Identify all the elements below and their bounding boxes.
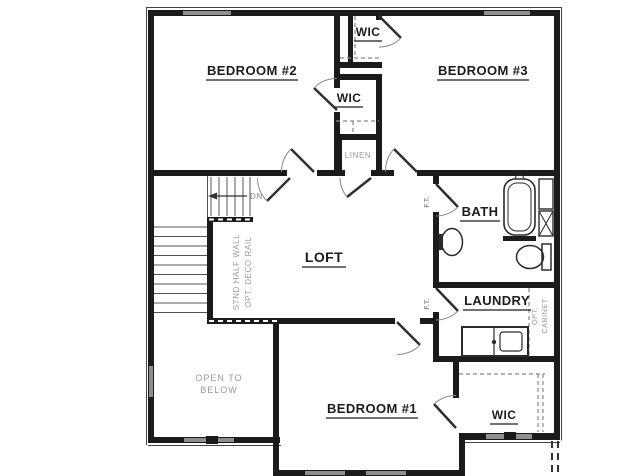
floor-transition-laundry-label: F.T.	[424, 298, 431, 309]
plan-background	[0, 0, 635, 476]
bedroom3-label: BEDROOM #3	[438, 63, 528, 78]
laundry-label: LAUNDRY	[464, 293, 530, 308]
wic-bottom-label: WIC	[492, 408, 517, 422]
opt-cabinet-note-2: CABINET	[540, 298, 549, 333]
bedroom1-label: BEDROOM #1	[327, 401, 417, 416]
floor-plan-drawing: BEDROOM #2 BEDROOM #3 WIC WIC LINEN LOFT…	[0, 0, 635, 476]
window-mullion	[206, 436, 218, 444]
window	[149, 366, 153, 397]
wic-top-label: WIC	[356, 25, 381, 39]
washer-knob	[492, 340, 496, 344]
bedroom2-label: BEDROOM #2	[207, 63, 297, 78]
sink-backsplash	[439, 234, 443, 250]
floor-plan-page: BEDROOM #2 BEDROOM #3 WIC WIC LINEN LOFT…	[0, 0, 635, 476]
window	[484, 11, 530, 15]
window	[366, 471, 406, 475]
open-to-below-label-1: OPEN TO	[195, 373, 242, 383]
down-label: DN	[250, 192, 263, 201]
linen-label: LINEN	[345, 151, 372, 160]
window	[305, 471, 345, 475]
window	[183, 11, 231, 15]
floor-transition-bath-label: F.T.	[424, 196, 431, 207]
half-wall-note-1: STND HALF WALL	[232, 234, 241, 311]
half-wall-note-2: OPT. DECO RAIL	[244, 236, 253, 308]
bath-label: BATH	[462, 204, 499, 219]
window-mullion	[504, 432, 516, 440]
wic-middle-label: WIC	[337, 91, 362, 105]
loft-label: LOFT	[305, 249, 343, 265]
opt-cabinet-note-1: OPT.	[530, 307, 539, 325]
open-to-below-label-2: BELOW	[200, 385, 238, 395]
